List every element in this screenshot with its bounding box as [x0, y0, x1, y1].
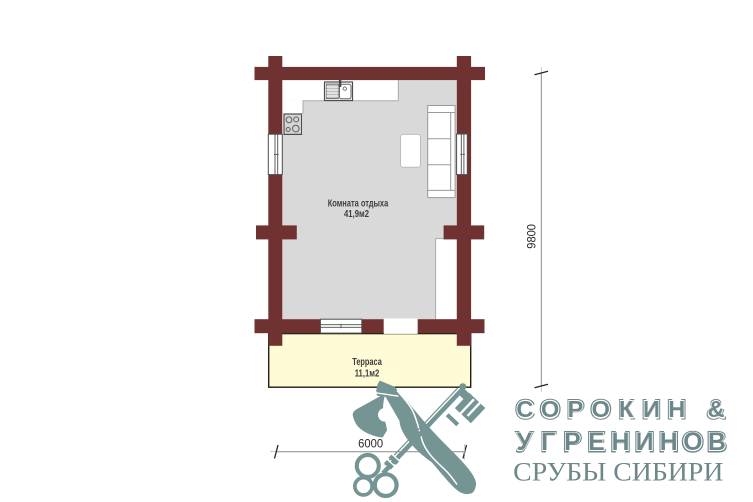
svg-text:Н: Н — [660, 429, 678, 456]
svg-text:11,1м2: 11,1м2 — [355, 369, 380, 380]
svg-text:Г: Г — [541, 429, 555, 456]
svg-text:&: & — [708, 396, 725, 422]
svg-text:С: С — [516, 396, 533, 422]
svg-text:Е: Е — [588, 429, 604, 456]
svg-text:О: О — [592, 396, 610, 422]
svg-text:В: В — [708, 429, 726, 456]
svg-text:Терраса: Терраса — [352, 357, 382, 368]
svg-text:И: И — [636, 429, 654, 456]
svg-text:И: И — [643, 396, 660, 422]
svg-text:СРУБЫ СИБИРИ: СРУБЫ СИБИРИ — [513, 458, 723, 487]
svg-text:О: О — [541, 396, 559, 422]
svg-text:Р: Р — [568, 396, 584, 422]
svg-text:9800: 9800 — [527, 224, 539, 249]
svg-text:Р: Р — [564, 429, 580, 456]
svg-text:Н: Н — [612, 429, 630, 456]
svg-text:41,9м2: 41,9м2 — [344, 209, 369, 220]
svg-text:У: У — [517, 429, 533, 456]
svg-text:Н: Н — [668, 396, 685, 422]
svg-text:6000: 6000 — [358, 438, 383, 450]
svg-text:К: К — [619, 396, 634, 422]
svg-text:О: О — [683, 429, 702, 456]
